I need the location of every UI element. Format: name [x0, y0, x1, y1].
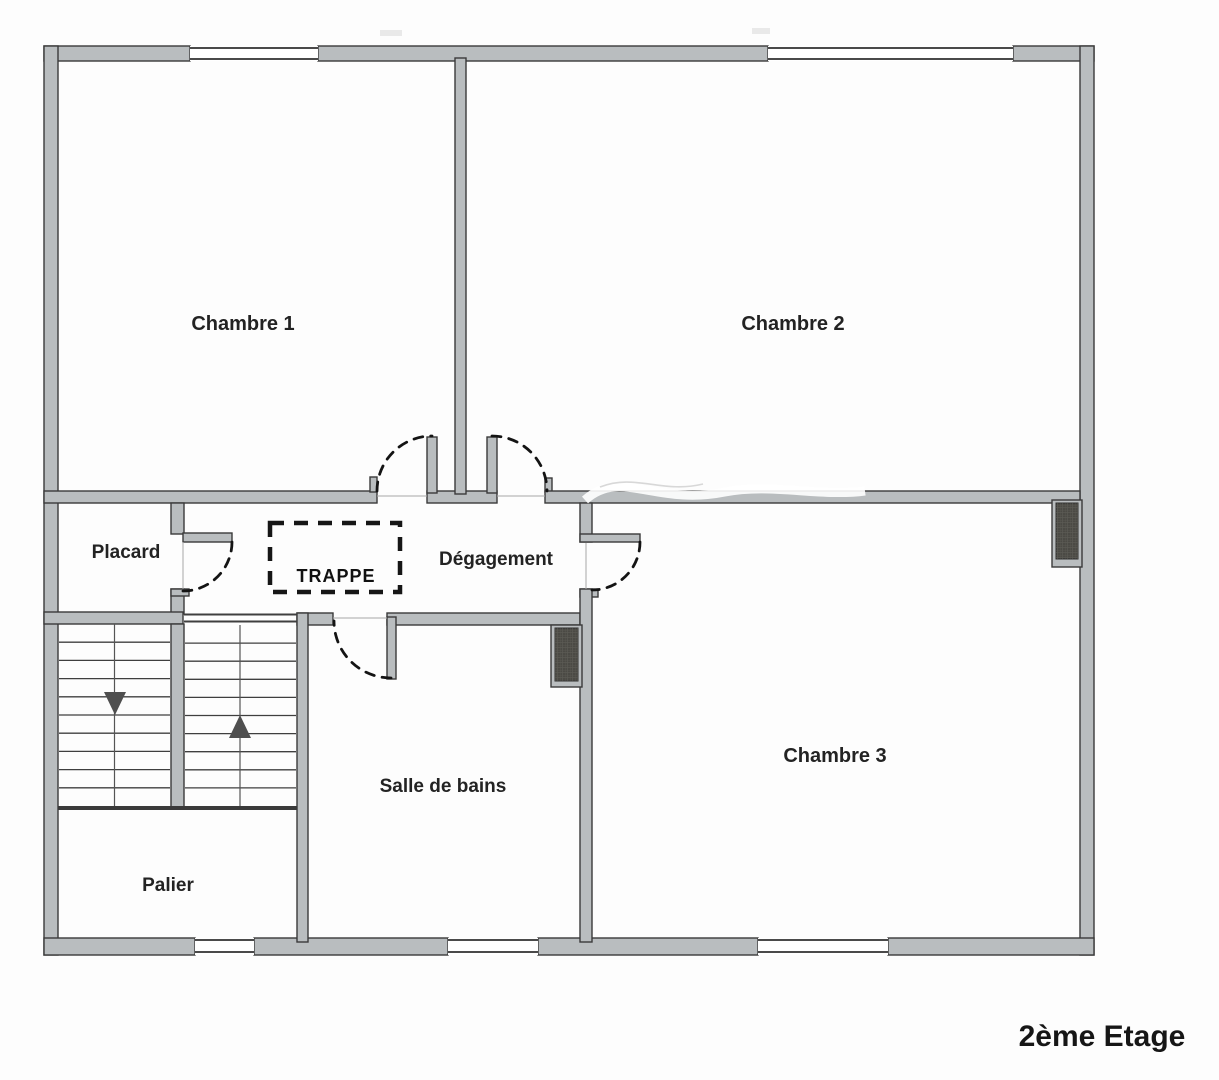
wall-bottom-2: [254, 938, 448, 955]
door-leaf-sdb: [387, 617, 396, 679]
wall-bottom-1: [44, 938, 195, 955]
wall-placard-bottom: [44, 612, 183, 624]
room-label-salle-de-bains: Salle de bains: [380, 776, 507, 797]
stairs-up-arrow: [229, 715, 251, 738]
floor-title: 2ème Etage: [1019, 1020, 1186, 1053]
door-arc-chambre2: [492, 436, 547, 491]
door-leaf-placard: [183, 533, 232, 542]
flue-right-wall: [1052, 500, 1082, 567]
floor-plan: Chambre 1 Chambre 2 Chambre 3 Placard TR…: [0, 0, 1219, 1080]
wall-bottom-4: [888, 938, 1094, 955]
window-top-2: [768, 46, 1013, 61]
room-label-chambre-3: Chambre 3: [783, 745, 886, 767]
wall-sdb-top-right: [387, 613, 580, 625]
wall-sdb-left: [297, 613, 308, 942]
room-label-degagement: Dégagement: [439, 549, 554, 570]
door-leaf-chambre1: [427, 437, 437, 493]
window-bottom-palier: [195, 938, 254, 955]
room-label-placard: Placard: [92, 542, 161, 563]
door-arc-placard: [183, 542, 232, 591]
wall-top-left: [44, 46, 190, 61]
stairs-down-arrow: [104, 692, 126, 715]
window-bottom-chambre3: [758, 938, 888, 955]
room-label-chambre-1: Chambre 1: [191, 313, 294, 335]
door-arc-sdb: [334, 621, 391, 678]
room-label-palier: Palier: [142, 875, 194, 896]
scan-artifacts: [380, 28, 865, 500]
stairs-bottom-edge: [58, 806, 297, 810]
room-label-chambre-2: Chambre 2: [741, 313, 844, 335]
door-leaf-chambre3: [580, 534, 640, 542]
wall-flight-divider: [171, 624, 184, 808]
wall-top-mid: [318, 46, 768, 61]
wall-bottom-3: [538, 938, 758, 955]
door-arc-chambre3: [592, 542, 640, 590]
window-top-1: [190, 46, 318, 61]
door-arc-chambre1: [377, 436, 432, 491]
wall-chambre1-bottom: [44, 491, 377, 503]
room-label-trappe: TRAPPE: [296, 566, 375, 586]
wall-divider-ch1-ch2: [455, 58, 466, 494]
flue-sdb: [551, 625, 582, 687]
window-bottom-sdb: [448, 938, 538, 955]
wall-placard-right-upper: [171, 503, 184, 534]
door-leaf-chambre2: [487, 437, 497, 493]
